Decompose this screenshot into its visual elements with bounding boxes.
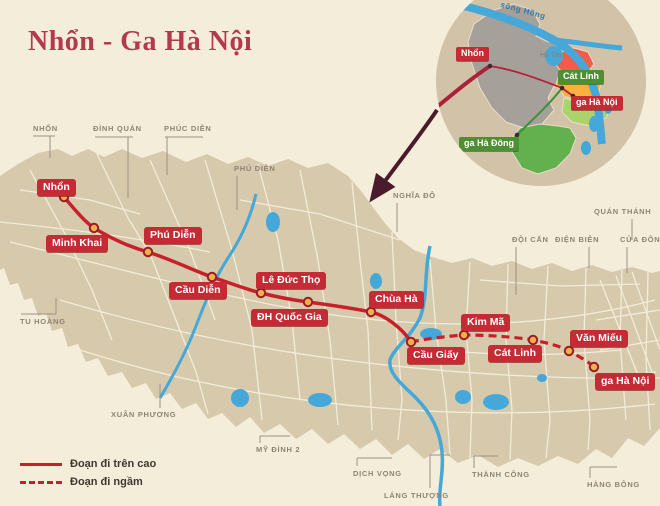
station-marker-van-mieu — [565, 347, 573, 355]
lake — [308, 393, 332, 407]
station-marker-ga-ha-noi — [590, 363, 598, 371]
area-label-thanh-cong: THÀNH CÔNG — [472, 470, 530, 479]
inset-lake-label: Hồ Tây — [540, 52, 562, 59]
station-label-chua-ha: Chùa Hà — [369, 291, 424, 308]
area-label-my-dinh-2: MỸ ĐÌNH 2 — [256, 445, 300, 454]
station-label-ga-ha-noi: ga Hà Nội — [595, 373, 655, 390]
station-marker-cau-giay — [407, 338, 415, 346]
area-label-dien-bien: ĐIỆN BIÊN — [555, 235, 599, 244]
station-label-van-mieu: Văn Miếu — [570, 330, 628, 347]
station-marker-phu-dien — [144, 248, 152, 256]
inset-pointer-arrow — [374, 110, 437, 196]
station-marker-chua-ha — [367, 308, 375, 316]
station-marker-cat-linh — [529, 336, 537, 344]
inset-lake — [581, 141, 591, 155]
station-label-cat-linh: Cát Linh — [488, 345, 542, 362]
legend-item-underground: Đoạn đi ngầm — [20, 474, 156, 490]
area-label-hang-bong: HÀNG BÔNG — [587, 480, 640, 489]
legend-swatch-dashed-line — [20, 481, 62, 484]
lake — [537, 374, 547, 382]
area-label-phu-dien: PHÚ DIỄN — [234, 164, 275, 173]
inset-label-ga-ha-dong: ga Hà Đông — [459, 137, 519, 151]
area-label-cua-dong: CỬA ĐÔNG — [620, 235, 660, 244]
station-label-nhon: Nhổn — [37, 179, 76, 196]
page-title: Nhổn - Ga Hà Nội — [28, 26, 252, 58]
metro-map-infographic: { "title": "Nhổn - Ga Hà Nội", "stations… — [0, 0, 660, 506]
lake — [266, 212, 280, 232]
station-marker-cau-dien — [208, 273, 216, 281]
station-marker-minh-khai — [90, 224, 98, 232]
station-label-phu-dien: Phú Diễn — [144, 227, 202, 244]
station-marker-dh-quoc-gia — [304, 298, 312, 306]
lake — [455, 390, 471, 404]
area-label-dinh-quan: ĐÌNH QUÁN — [93, 124, 142, 133]
area-label-tu-hoang: TU HOÀNG — [20, 317, 66, 326]
area-label-dich-vong: DỊCH VỌNG — [353, 469, 402, 478]
inset-label-ga-ha-noi: ga Hà Nội — [571, 96, 623, 110]
station-label-dh-quoc-gia: ĐH Quốc Gia — [251, 309, 328, 326]
lake — [370, 273, 382, 289]
inset-label-cat-linh: Cát Linh — [558, 70, 604, 84]
lake — [483, 394, 509, 410]
area-label-phuc-dien: PHÚC DIỄN — [164, 124, 212, 133]
station-label-minh-khai: Minh Khai — [46, 235, 108, 252]
inset-lake — [589, 116, 599, 132]
legend-label-underground: Đoạn đi ngầm — [70, 476, 143, 488]
station-marker-le-duc-tho — [257, 289, 265, 297]
area-label-nhon: NHỔN — [33, 124, 58, 133]
station-label-kim-ma: Kim Mã — [461, 314, 510, 331]
station-label-cau-giay: Cầu Giấy — [407, 347, 465, 364]
station-marker-kim-ma — [460, 331, 468, 339]
station-label-cau-dien: Cầu Diễn — [169, 282, 227, 299]
legend-swatch-solid-line — [20, 463, 62, 466]
area-label-xuan-phuong: XUÂN PHƯƠNG — [111, 410, 176, 419]
area-label-nghia-do: NGHĨA ĐÔ — [393, 191, 436, 200]
area-label-lang-thuong: LÁNG THƯỢNG — [384, 491, 449, 500]
legend-item-elevated: Đoạn đi trên cao — [20, 456, 156, 472]
legend: Đoạn đi trên cao Đoạn đi ngầm — [20, 456, 156, 492]
area-label-quan-thanh: QUÁN THÁNH — [594, 207, 651, 216]
inset-label-nhon: Nhổn — [456, 47, 489, 61]
station-label-le-duc-tho: Lê Đức Thọ — [256, 272, 326, 289]
lake — [231, 389, 249, 407]
area-label-doi-can: ĐỘI CẤN — [512, 235, 549, 244]
legend-label-elevated: Đoạn đi trên cao — [70, 458, 156, 470]
